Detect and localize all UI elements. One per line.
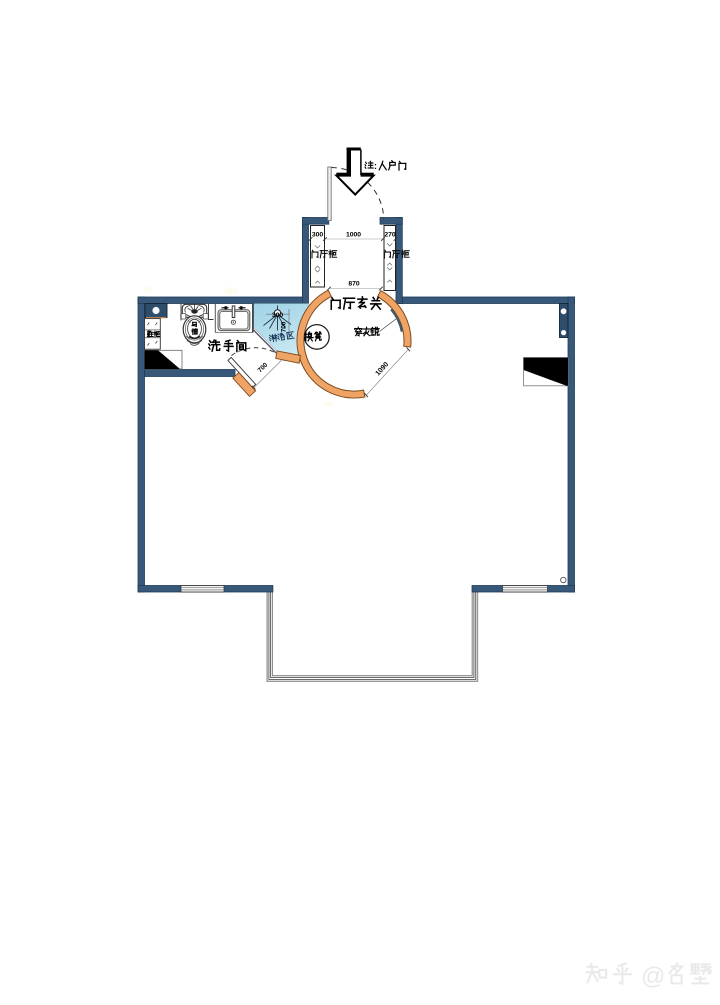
- svg-text:@: @: [641, 963, 665, 990]
- svg-text:870: 870: [348, 281, 360, 288]
- svg-text:700: 700: [280, 321, 287, 332]
- svg-text:1000: 1000: [346, 232, 361, 239]
- svg-text:270: 270: [384, 232, 396, 239]
- svg-text:300: 300: [312, 232, 324, 239]
- svg-text:300: 300: [272, 312, 284, 319]
- svg-text::: :: [374, 161, 377, 171]
